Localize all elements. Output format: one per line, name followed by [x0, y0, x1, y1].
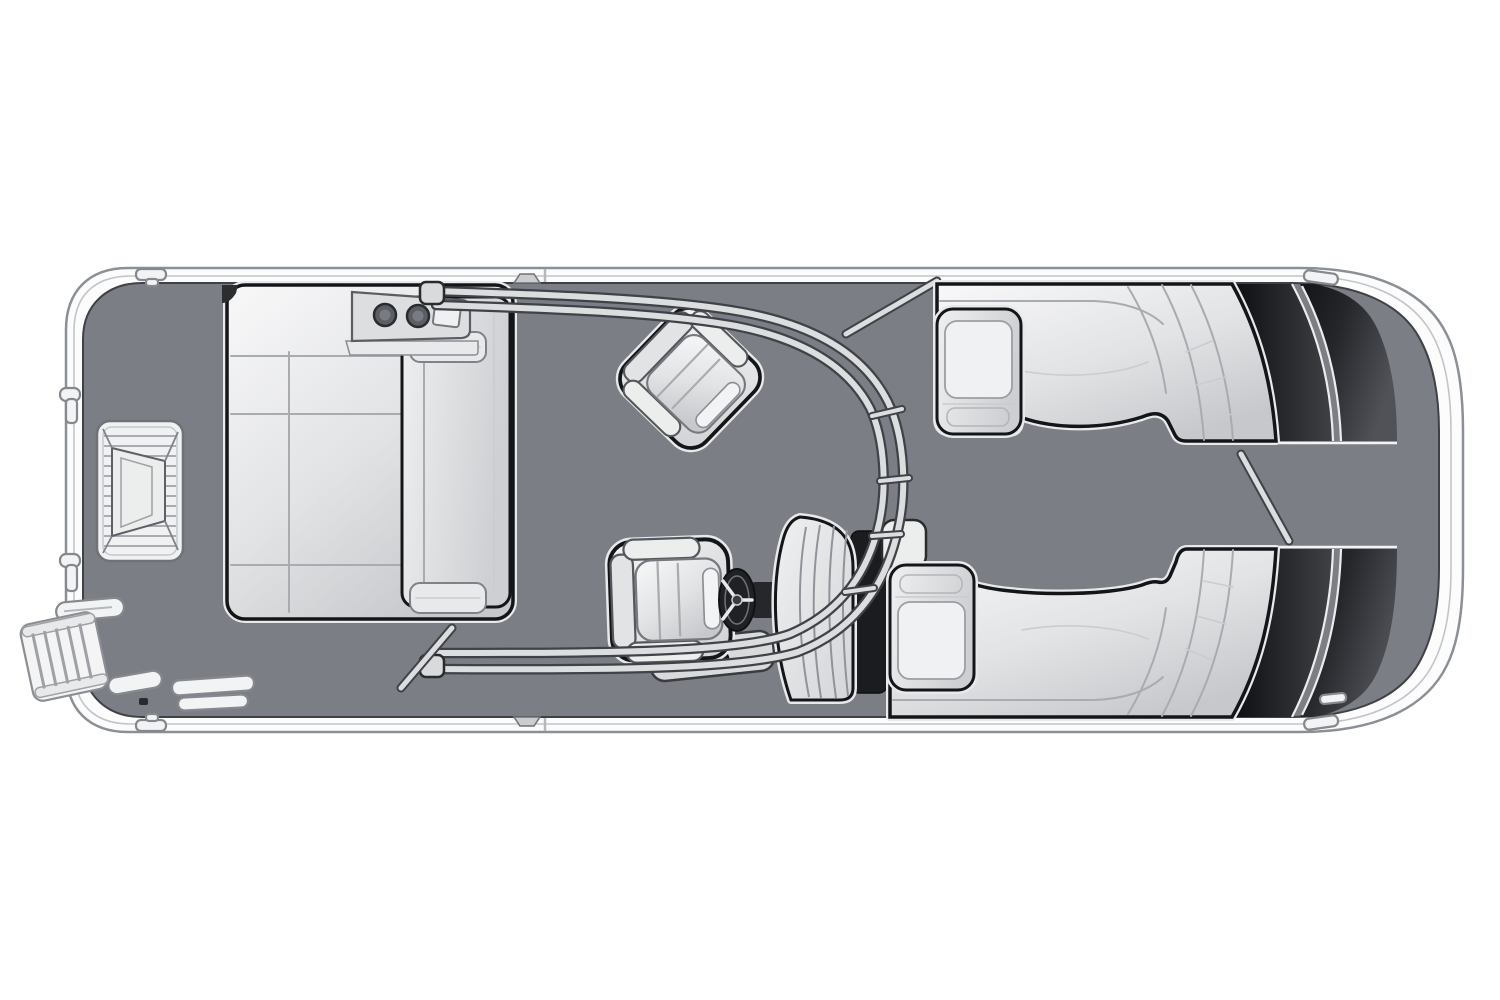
- pontoon-floorplan-diagram: [0, 0, 1500, 1000]
- boarding-ladder: [19, 611, 110, 703]
- pontoon-floorplan-page: [0, 0, 1500, 1000]
- armrest-pad: [898, 602, 965, 679]
- stern-entry-steps: [97, 421, 183, 561]
- port-bow-armrest: [937, 309, 1021, 434]
- helm-console: [775, 517, 853, 700]
- cleat: [1320, 693, 1347, 705]
- cupholder-inner: [413, 311, 424, 322]
- arch-mount: [420, 282, 444, 304]
- starboard-bow-armrest: [890, 565, 974, 690]
- armrest-pad: [945, 321, 1012, 398]
- grab-handle: [178, 694, 249, 711]
- wheel-hub: [732, 595, 742, 605]
- fence-post: [66, 399, 77, 423]
- cupholder-inner: [380, 310, 391, 321]
- cleat: [146, 714, 158, 721]
- transom-latch: [139, 698, 148, 705]
- cleat: [146, 279, 158, 286]
- fence-post: [66, 565, 77, 591]
